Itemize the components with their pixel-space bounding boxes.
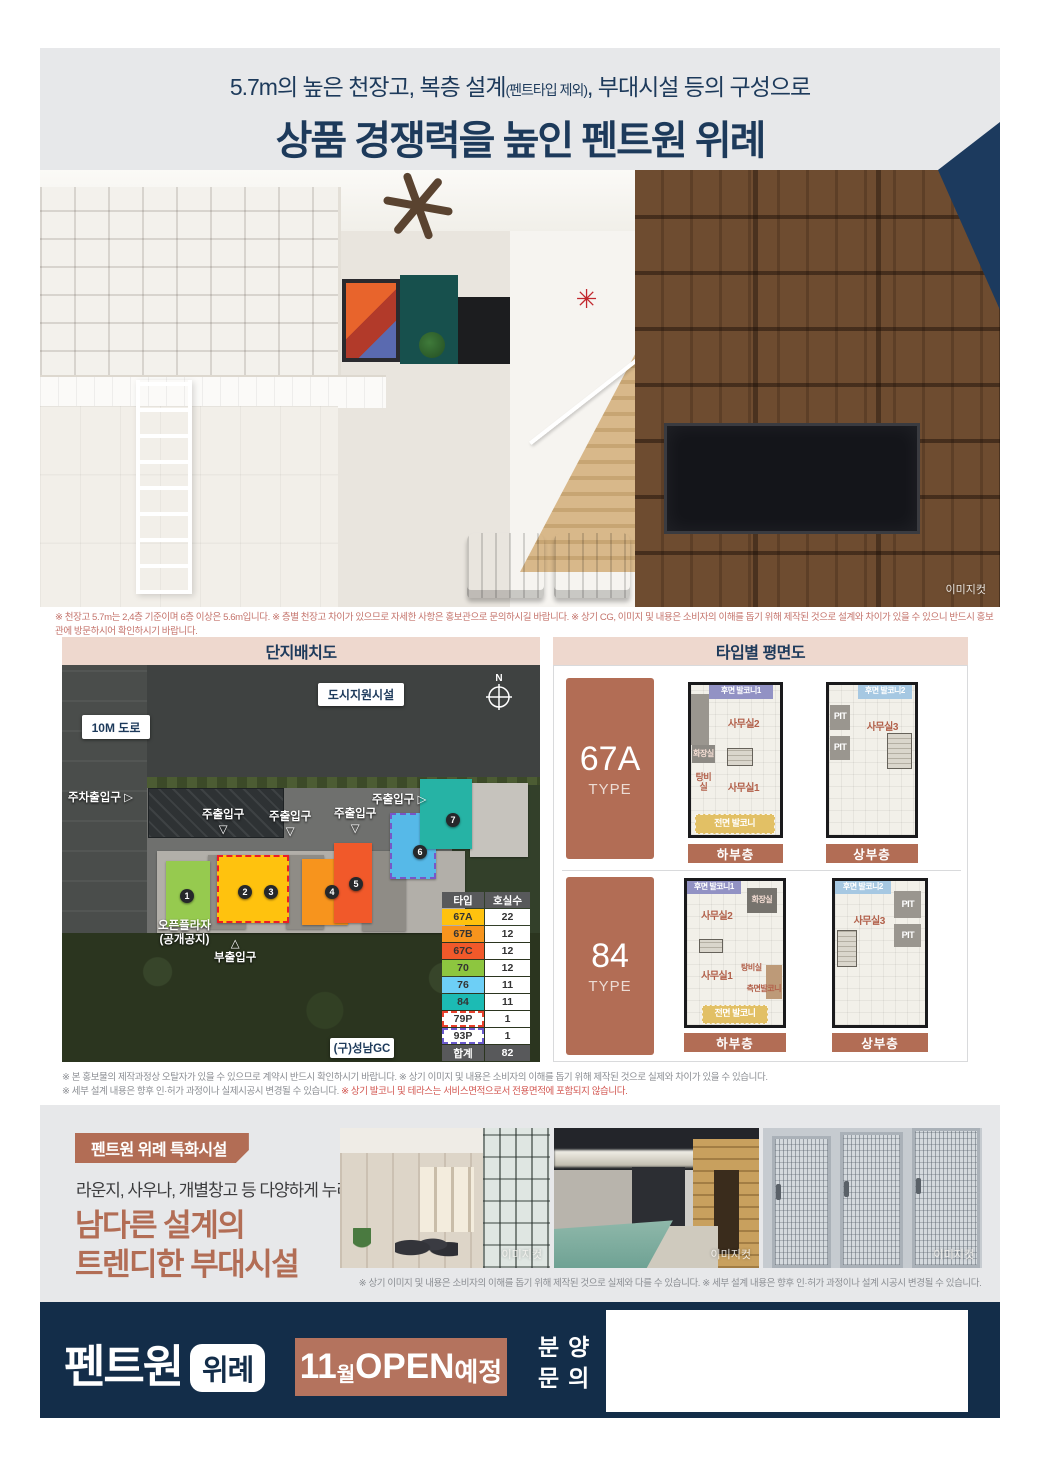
building-block — [420, 779, 472, 849]
ladder — [136, 380, 192, 594]
mid-disclaimer-2-gray: ※ 세부 설계 내용은 향후 인·허가 과정이나 실제시공시 변경될 수 있습니… — [62, 1086, 341, 1097]
parking-entrance-label: 주차출입구 ▷ — [68, 789, 133, 805]
arrow-up-icon: △ — [231, 938, 240, 950]
table-cell-type: 67B — [442, 926, 484, 942]
room-label: 측면발코니 — [745, 982, 783, 996]
table-row: 93P1 — [442, 1028, 530, 1044]
unit-count-table: 타입호실수67A2267B1267C1270127611841179P193P1… — [442, 892, 530, 1062]
room-label: 사무실1 — [716, 769, 771, 808]
building-marker: 2 — [238, 885, 252, 899]
room-label: PIT — [830, 736, 851, 760]
amenity-photo-pool-sauna: 이미지컷 — [554, 1128, 759, 1268]
room-label: PIT — [894, 891, 921, 918]
amenities-headline-2: 트렌디한 부대시설 — [75, 1239, 298, 1284]
open-plaza-label: 오픈플라자(공개공지) — [158, 919, 211, 948]
plan-structure — [691, 694, 709, 745]
contact-line2: 문의 — [538, 1365, 598, 1391]
room-label: PIT — [830, 705, 851, 731]
arrow-down-icon: ▽ — [219, 824, 228, 836]
room-label: 사무실2 — [693, 898, 741, 935]
main-entrance-label-7: 주출입구 ▷ — [372, 791, 426, 807]
table-cell-count: 82 — [485, 1045, 530, 1061]
floor-plan-84-lower: 후면 발코니1화장실사무실2사무실1탕비실측면발코니전면 발코니 — [684, 878, 786, 1028]
room-label: 사무실2 — [711, 702, 777, 747]
table-cell-type: 76 — [442, 977, 484, 993]
type-block-67a: 67A TYPE — [566, 678, 654, 859]
table-row: 67A22 — [442, 909, 530, 925]
table-header-cell: 호실수 — [485, 892, 530, 908]
header-subtitle-pre: 5.7m의 높은 천장고, 복층 설계 — [230, 74, 506, 100]
table-cell-type: 79P — [442, 1011, 484, 1027]
plan-structure — [837, 930, 857, 967]
room-label: 후면 발코니2 — [835, 881, 891, 894]
white-bookshelf — [40, 187, 341, 379]
building-marker: 1 — [180, 889, 194, 903]
sub-entrance-text: 부출입구 — [214, 952, 256, 964]
caption-lower: 하부층 — [688, 844, 783, 863]
arrow-down-icon: ▽ — [351, 823, 360, 835]
floor-plan-84-upper: 후면 발코니2PITPIT사무실3 — [832, 878, 928, 1028]
floor-plan-title: 타입별 평면도 — [553, 637, 968, 665]
table-cell-type: 67C — [442, 943, 484, 959]
open-suffix: 예정 — [454, 1352, 502, 1389]
caption-upper: 상부층 — [826, 844, 918, 863]
contact-box — [606, 1310, 968, 1412]
table-cell-type: 합계 — [442, 1045, 484, 1061]
main-entrance-text: 주출입구 — [334, 808, 376, 820]
main-entrance-label-3: 주출입구▽ — [334, 805, 376, 835]
room-label: 사무실1 — [693, 956, 741, 996]
red-logo-mark: ✳ — [576, 284, 598, 315]
open-word: OPEN — [355, 1347, 454, 1387]
room-label: 후면 발코니1 — [709, 685, 773, 699]
floor-plan-67a-lower: 후면 발코니1사무실2화장실탕비실사무실1전면 발코니 — [688, 682, 783, 838]
ceiling-fan — [357, 179, 477, 229]
table-row: 67C12 — [442, 943, 530, 959]
brand-badge: 위례 — [190, 1344, 265, 1392]
table-cell-count: 12 — [485, 926, 530, 942]
building-marker: 4 — [325, 885, 339, 899]
plan-structure — [887, 733, 911, 769]
compass-n: N — [486, 673, 512, 684]
floor-plan-panel: 타입별 평면도 67A TYPE 후면 발코니1사무실2화장실탕비실사무실1전면… — [553, 637, 968, 1062]
building-block — [217, 855, 289, 923]
table-row: 합계82 — [442, 1045, 530, 1061]
image-cut-watermark: 이미지컷 — [934, 1246, 974, 1262]
flyer-page: 5.7m의 높은 천장고, 복층 설계(펜트타입 제외), 부대시설 등의 구성… — [0, 0, 1040, 1470]
room-label: 전면 발코니 — [702, 1005, 767, 1024]
footer-band: 펜트원 위례 11월 OPEN예정 분양문의 — [40, 1302, 1000, 1418]
room-label: PIT — [894, 924, 921, 947]
amenity-photo-lounge: 이미지컷 — [340, 1128, 550, 1268]
amenity-photo-storage: 이미지컷 — [763, 1128, 982, 1268]
amenities-badge: 펜트원 위례 특화시설 — [75, 1133, 249, 1163]
open-schedule-badge: 11월 OPEN예정 — [295, 1338, 507, 1396]
black-cabinet — [458, 297, 511, 365]
leather-chair — [554, 533, 631, 599]
building-block — [470, 783, 528, 857]
brand-logo: 펜트원 — [64, 1330, 182, 1395]
table-row: 7012 — [442, 960, 530, 976]
table-cell-count: 1 — [485, 1011, 530, 1027]
parking-entrance-text: 주차출입구 — [68, 792, 121, 804]
road-label: 10M 도로 — [82, 715, 150, 739]
room-label: 후면 발코니1 — [687, 881, 741, 894]
contact-label: 분양문의 — [538, 1332, 598, 1394]
open-plaza-text2: (공개공지) — [159, 934, 209, 946]
contact-line1: 분양 — [538, 1334, 598, 1360]
header-band: 5.7m의 높은 천장고, 복층 설계(펜트타입 제외), 부대시설 등의 구성… — [40, 48, 1000, 170]
table-cell-count: 11 — [485, 977, 530, 993]
room-label: 후면 발코니2 — [858, 685, 911, 699]
table-cell-type: 70 — [442, 960, 484, 976]
leather-chair — [467, 533, 544, 599]
table-cell-type: 67A — [442, 909, 484, 925]
table-row: 67B12 — [442, 926, 530, 942]
table-row: 79P1 — [442, 1011, 530, 1027]
amenities-disclaimer: ※ 상기 이미지 및 내용은 소비자의 이해를 돕기 위해 제작된 것으로 실제… — [340, 1277, 1000, 1291]
table-cell-type: 93P — [442, 1028, 484, 1044]
building-marker: 5 — [349, 877, 363, 891]
gc-label: (구)성남GC — [330, 1038, 394, 1058]
mid-disclaimer-2-red: ※ 상기 발코니 및 테라스는 서비스면적으로서 전용면적에 포함되지 않습니다… — [341, 1086, 627, 1097]
amenities-subtitle: 라운지, 사우나, 개별창고 등 다양하게 누리는 — [76, 1176, 366, 1201]
table-cell-type: 84 — [442, 994, 484, 1010]
sub-entrance-label: △부출입구 — [214, 937, 256, 966]
type-name: 84 — [591, 937, 629, 976]
room-label: 화장실 — [747, 888, 778, 912]
caption-upper: 상부층 — [832, 1033, 928, 1052]
table-row: 8411 — [442, 994, 530, 1010]
image-cut-watermark: 이미지컷 — [711, 1246, 751, 1262]
header-subtitle-small: (펜트타입 제외) — [506, 82, 588, 98]
table-row: 7611 — [442, 977, 530, 993]
city-support-label: 도시지원시설 — [318, 683, 404, 706]
hero-photo: ✳ 이미지컷 — [40, 170, 1000, 607]
type-name: 67A — [580, 740, 641, 779]
main-entrance-text: 주출입구 — [269, 811, 311, 823]
plant — [419, 332, 445, 358]
mid-disclaimer-2: ※ 세부 설계 내용은 향후 인·허가 과정이나 실제시공시 변경될 수 있습니… — [62, 1085, 982, 1099]
mid-disclaimer-1: ※ 본 홍보물의 제작과정상 오탈자가 있을 수 있으므로 계약시 반드시 확인… — [62, 1071, 982, 1085]
hero-disclaimer: ※ 천장고 5.7m는 2,4층 기준이며 6층 이상은 5.6m입니다. ※ … — [55, 611, 1000, 640]
caption-lower: 하부층 — [684, 1033, 786, 1052]
page-title: 상품 경쟁력을 높인 펜트원 위례 — [40, 108, 1000, 166]
type-label: TYPE — [588, 781, 631, 798]
type-label: TYPE — [588, 978, 631, 995]
arrow-down-icon: ▽ — [286, 826, 295, 838]
wall-art — [342, 279, 400, 362]
open-month-unit: 월 — [337, 1358, 355, 1387]
floor-plan-body: 67A TYPE 후면 발코니1사무실2화장실탕비실사무실1전면 발코니 하부층… — [553, 665, 968, 1062]
arrow-right-icon: ▷ — [418, 794, 427, 806]
table-cell-count: 12 — [485, 943, 530, 959]
header-subtitle-post: , 부대시설 등의 구성으로 — [587, 74, 810, 100]
main-entrance-text: 주출입구 — [202, 809, 244, 821]
table-header-row: 타입호실수 — [442, 892, 530, 908]
table-cell-count: 1 — [485, 1028, 530, 1044]
image-cut-watermark: 이미지컷 — [946, 581, 986, 597]
room-label: 탕비실 — [741, 959, 762, 978]
table-header-cell: 타입 — [442, 892, 484, 908]
site-map: 1234567 도시지원시설 N 10M 도로 주차출입구 ▷ 주출입구▽ 주출… — [62, 665, 540, 1062]
wood-bookshelf-wall — [635, 170, 1000, 607]
building-marker: 7 — [446, 813, 460, 827]
floor-plan-67a-upper: 후면 발코니2PITPIT사무실3 — [826, 682, 918, 838]
table-cell-count: 11 — [485, 994, 530, 1010]
building-marker: 6 — [413, 845, 427, 859]
main-entrance-label-2: 주출입구▽ — [269, 808, 311, 838]
panel-divider — [562, 870, 961, 871]
plan-structure — [699, 939, 724, 953]
room-label: 탕비실 — [692, 775, 715, 792]
mezzanine-railing — [40, 375, 386, 408]
arrow-right-icon: ▷ — [124, 792, 133, 804]
open-month-number: 11 — [300, 1347, 337, 1387]
tv-screen — [664, 423, 920, 534]
site-plan-panel: 단지배치도 1234567 도시지원시설 N 10M 도로 주차출입구 ▷ 주출… — [62, 637, 540, 1062]
header-subtitle: 5.7m의 높은 천장고, 복층 설계(펜트타입 제외), 부대시설 등의 구성… — [40, 68, 1000, 102]
building-marker: 3 — [264, 885, 278, 899]
image-cut-watermark: 이미지컷 — [502, 1246, 542, 1262]
main-entrance-label-1: 주출입구▽ — [202, 806, 244, 836]
type-block-84: 84 TYPE — [566, 877, 654, 1055]
site-plan-title: 단지배치도 — [62, 637, 540, 665]
compass-icon: N — [486, 673, 512, 715]
main-entrance-text: 주출입구 — [372, 794, 414, 806]
plan-structure — [727, 748, 754, 766]
open-plaza-text1: 오픈플라자 — [158, 920, 211, 932]
room-label: 화장실 — [692, 745, 715, 763]
table-cell-count: 12 — [485, 960, 530, 976]
room-label: 전면 발코니 — [695, 814, 775, 834]
table-cell-count: 22 — [485, 909, 530, 925]
